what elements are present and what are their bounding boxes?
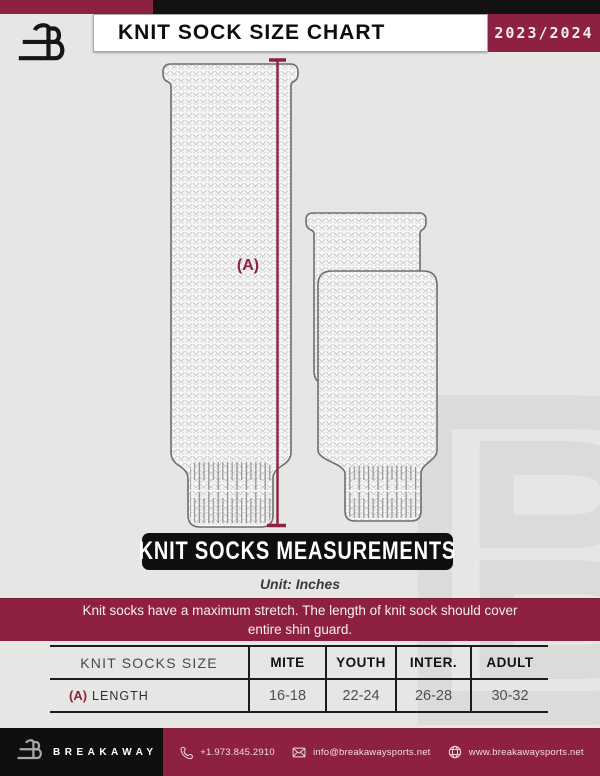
- footer-contacts: +1.973.845.2910 info@breakawaysports.net: [163, 728, 600, 776]
- season-badge: 2023/2024: [488, 14, 600, 52]
- top-bar: [0, 0, 600, 14]
- measurement-line-A: [267, 60, 286, 526]
- sock-large: [163, 64, 298, 527]
- page-title-box: KNIT SOCK SIZE CHART: [93, 14, 488, 52]
- sock-large-ribbing: [190, 462, 271, 523]
- size-table: KNIT SOCKS SIZE MITE YOUTH INTER. ADULT …: [50, 645, 548, 713]
- measurements-banner-label: KNIT SOCKS MEASUREMENTS: [139, 537, 456, 566]
- footer-website-item: www.breakawaysports.net: [447, 744, 584, 760]
- dimension-name: LENGTH: [92, 689, 149, 703]
- footer-brand-block: BREAKAWAY: [0, 728, 163, 776]
- table-row-length-label: (A) LENGTH: [50, 680, 248, 711]
- dimension-label: (A): [237, 257, 259, 274]
- envelope-icon: [291, 745, 307, 760]
- table-header-adult: ADULT: [470, 647, 548, 680]
- footer-email-address: info@breakawaysports.net: [313, 747, 430, 758]
- measurements-banner: KNIT SOCKS MEASUREMENTS: [142, 533, 453, 570]
- breakaway-logo-icon-small: [16, 738, 46, 766]
- footer-email-item: info@breakawaysports.net: [291, 745, 430, 760]
- table-value-adult: 30-32: [470, 680, 548, 711]
- table-header-youth: YOUTH: [325, 647, 395, 680]
- season-label: 2023/2024: [494, 24, 593, 42]
- unit-label: Unit: Inches: [0, 576, 600, 592]
- phone-icon: [179, 745, 194, 760]
- table-header-inter: INTER.: [395, 647, 470, 680]
- table-value-youth: 22-24: [325, 680, 395, 711]
- breakaway-logo-icon: [16, 18, 72, 76]
- table-header-mite: MITE: [248, 647, 325, 680]
- footer-phone-item: +1.973.845.2910: [179, 745, 275, 760]
- table-value-mite: 16-18: [248, 680, 325, 711]
- dimension-key: (A): [69, 688, 87, 703]
- table-value-inter: 26-28: [395, 680, 470, 711]
- footer-phone-number: +1.973.845.2910: [200, 747, 275, 758]
- footer-website-url: www.breakawaysports.net: [469, 747, 584, 758]
- table-header-size: KNIT SOCKS SIZE: [50, 647, 248, 680]
- size-chart-page: B KNIT SOCK SIZE CHART 2023/2024: [0, 0, 600, 776]
- stretch-notice-line1: Knit socks have a maximum stretch. The l…: [83, 601, 518, 620]
- stretch-notice-line2: entire shin guard.: [248, 620, 352, 639]
- top-bar-accent: [0, 0, 153, 14]
- globe-icon: [447, 744, 463, 760]
- footer-brand-name: BREAKAWAY: [53, 747, 158, 758]
- footer: BREAKAWAY +1.973.845.2910 info@breakaway…: [0, 728, 600, 776]
- page-title: KNIT SOCK SIZE CHART: [94, 21, 385, 45]
- stretch-notice: Knit socks have a maximum stretch. The l…: [0, 598, 600, 641]
